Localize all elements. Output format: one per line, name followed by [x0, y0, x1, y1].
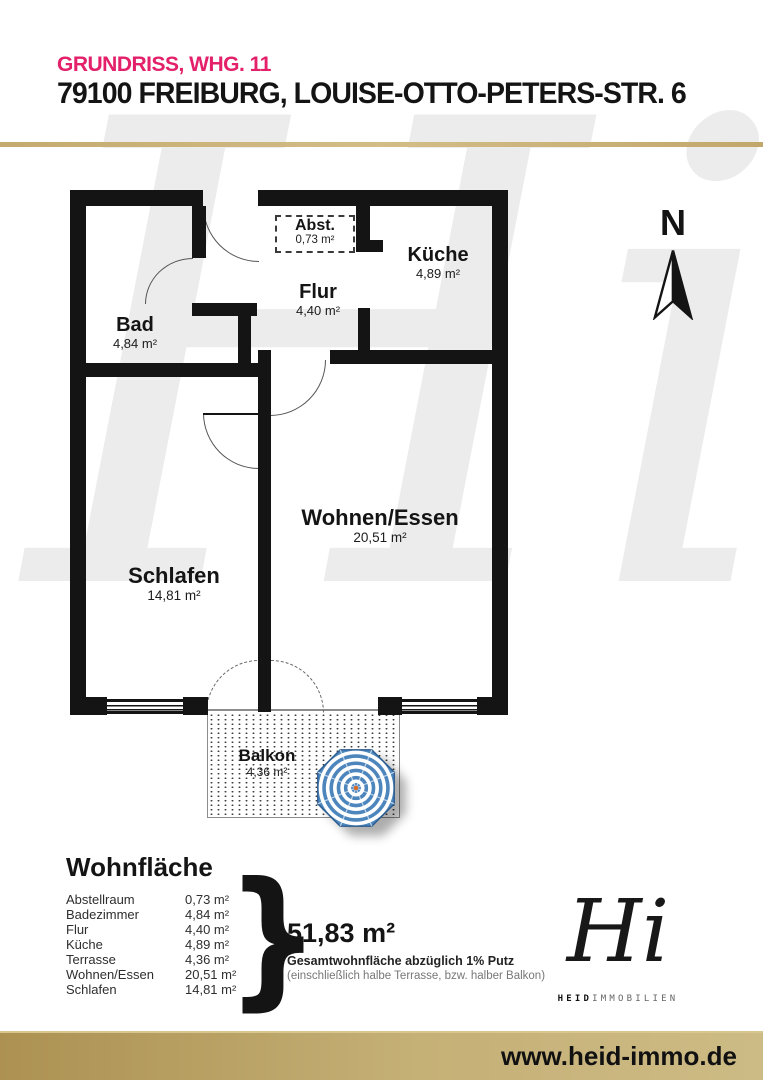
room-area: 14,81 m² — [128, 588, 220, 603]
wall-segment — [192, 303, 257, 316]
north-arrow-icon — [651, 248, 695, 320]
wall-segment — [356, 240, 383, 252]
window-symbol — [107, 699, 183, 714]
wall-segment — [70, 190, 203, 206]
wall-segment — [86, 363, 258, 377]
floor-plan: Bad 4,84 m² Flur 4,40 m² Abst. 0,73 m² K… — [70, 190, 508, 715]
flyer-subtitle: GRUNDRISS, WHG. 11 — [57, 53, 271, 77]
room-name: Bad — [113, 314, 157, 336]
door-arc-balcony-right — [271, 660, 324, 713]
footer-bar: www.heid-immo.de — [0, 1031, 763, 1080]
room-label-flur: Flur 4,40 m² — [296, 281, 340, 318]
room-label-kueche: Küche 4,89 m² — [407, 244, 468, 281]
table-row: Schlafen 14,81 m² — [66, 982, 236, 997]
door-arc-wohnen — [270, 360, 326, 416]
room-name: Küche — [407, 244, 468, 266]
row-label: Abstellraum — [66, 892, 185, 907]
room-area: 4,84 m² — [113, 336, 157, 351]
wall-segment — [70, 190, 86, 715]
room-area: 4,40 m² — [296, 303, 340, 318]
row-label: Badezimmer — [66, 907, 185, 922]
door-arc-schlafen — [203, 413, 259, 469]
total-area-note-bold: Gesamtwohnfläche abzüglich 1% Putz — [287, 954, 514, 968]
wall-segment — [358, 308, 370, 350]
wall-segment — [258, 350, 271, 413]
row-label: Terrasse — [66, 952, 185, 967]
area-summary-table: Abstellraum 0,73 m² Badezimmer 4,84 m² F… — [66, 892, 236, 997]
room-label-bad: Bad 4,84 m² — [113, 314, 157, 351]
room-label-balkon: Balkon 4,36 m² — [239, 746, 296, 779]
logo-wordmark-light: IMMOBILIEN — [592, 994, 678, 1004]
north-label: N — [638, 204, 708, 242]
wall-segment — [258, 413, 271, 712]
room-label-schlafen: Schlafen 14,81 m² — [128, 564, 220, 603]
wall-segment — [378, 697, 402, 715]
company-logo: Hi HEIDIMMOBILIEN — [538, 878, 698, 1004]
room-name: Schlafen — [128, 564, 220, 588]
wall-segment — [492, 190, 508, 715]
wall-segment — [70, 697, 107, 715]
flyer-page: Hi GRUNDRISS, WHG. 11 79100 FREIBURG, LO… — [0, 0, 763, 1080]
door-arc-balcony-left — [206, 660, 259, 713]
table-row: Badezimmer 4,84 m² — [66, 907, 236, 922]
table-row: Küche 4,89 m² — [66, 937, 236, 952]
north-compass: N — [638, 204, 708, 325]
room-name: Balkon — [239, 746, 296, 765]
table-row: Terrasse 4,36 m² — [66, 952, 236, 967]
room-area: 4,36 m² — [239, 765, 296, 779]
room-area: 20,51 m² — [301, 530, 458, 545]
table-row: Abstellraum 0,73 m² — [66, 892, 236, 907]
flyer-title: 79100 FREIBURG, LOUISE-OTTO-PETERS-STR. … — [57, 77, 686, 111]
row-value: 0,73 m² — [185, 892, 229, 907]
logo-wordmark-bold: HEID — [558, 994, 592, 1004]
row-label: Flur — [66, 922, 185, 937]
wall-segment — [192, 206, 206, 258]
row-value: 4,89 m² — [185, 937, 229, 952]
logo-monogram: Hi — [538, 878, 698, 986]
room-name: Wohnen/Essen — [301, 506, 458, 530]
window-symbol — [402, 699, 477, 714]
table-row: Flur 4,40 m² — [66, 922, 236, 937]
wall-segment — [330, 350, 492, 364]
footer-website: www.heid-immo.de — [501, 1033, 737, 1080]
door-arc-bad — [145, 258, 193, 304]
room-label-wohnen-essen: Wohnen/Essen 20,51 m² — [301, 506, 458, 545]
row-value: 4,40 m² — [185, 922, 229, 937]
row-value: 4,84 m² — [185, 907, 229, 922]
row-label: Wohnen/Essen — [66, 967, 185, 982]
row-label: Schlafen — [66, 982, 185, 997]
wall-segment — [183, 697, 208, 715]
table-row: Wohnen/Essen 20,51 m² — [66, 967, 236, 982]
total-area-value: 51,83 m² — [287, 918, 395, 949]
door-leaf — [203, 413, 258, 415]
wall-segment — [258, 190, 508, 206]
beach-umbrella-icon — [311, 743, 401, 833]
room-label-abst: Abst. 0,73 m² — [295, 217, 335, 246]
door-arc-entrance — [203, 206, 259, 262]
wall-segment — [238, 316, 251, 363]
gold-divider — [0, 142, 763, 147]
room-name: Flur — [296, 281, 340, 303]
room-area: 4,89 m² — [407, 266, 468, 281]
wall-segment — [477, 697, 508, 715]
row-value: 4,36 m² — [185, 952, 229, 967]
logo-wordmark: HEIDIMMOBILIEN — [538, 994, 698, 1004]
area-summary-title: Wohnfläche — [66, 852, 213, 883]
room-area: 0,73 m² — [295, 234, 335, 246]
total-area-note: (einschließlich halbe Terrasse, bzw. hal… — [287, 970, 545, 982]
room-name: Abst. — [295, 217, 335, 234]
row-label: Küche — [66, 937, 185, 952]
